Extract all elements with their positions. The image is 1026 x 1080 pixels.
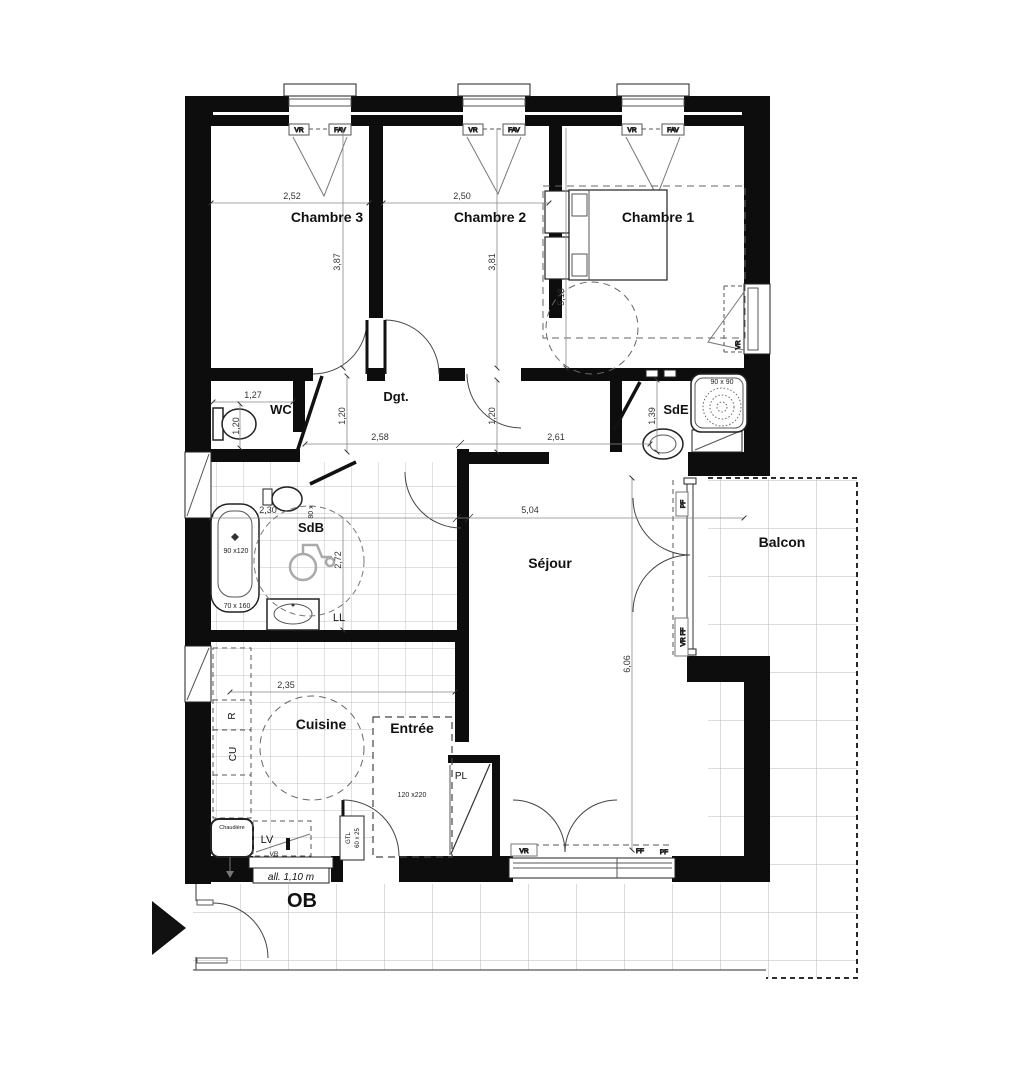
room-label-dgt: Dgt. — [383, 389, 408, 404]
room-label-entree: Entrée — [390, 720, 434, 736]
sde-shelf-1 — [646, 370, 658, 377]
window-chambre3: VR FAV — [284, 84, 356, 196]
dim-label-dgt-right: 1,20 — [487, 407, 497, 425]
window-label-fav: FAV — [334, 127, 346, 134]
cooking-label: CU — [228, 747, 239, 761]
floor-plan-page: VR FAV VR FAV VR FAV — [0, 0, 1026, 1080]
window-label-pf: PF — [660, 849, 668, 856]
dim-label-chambre3-depth: 3,87 — [332, 253, 342, 271]
bathtub-size-label: 90 x120 — [224, 548, 249, 555]
sde-shelf-2 — [664, 370, 676, 377]
dim-label-wc-depth: 1,20 — [231, 417, 241, 435]
dim-label-couloir-width: 2,61 — [547, 432, 565, 442]
window-sejour-balcon: PF VR FF — [673, 478, 696, 656]
dim-label-cuisine-width: 2,35 — [277, 680, 295, 690]
window-sde-south — [692, 430, 742, 452]
room-label-cuisine: Cuisine — [296, 716, 347, 732]
dim-label-sejour-depth: 6,06 — [622, 655, 632, 673]
wall-wc-east — [293, 368, 305, 432]
fridge-label: R — [227, 712, 238, 719]
entry-door-size-label: 120 x220 — [398, 792, 427, 799]
dim-label-dgt-width: 2,58 — [371, 432, 389, 442]
wall-placard-right — [492, 755, 500, 858]
wall-sdb-east — [457, 449, 469, 642]
window-label-vr: VR — [627, 127, 636, 134]
ob-label: OB — [287, 890, 317, 912]
dim-label-chambre2-depth: 3,81 — [487, 253, 497, 271]
dim-label-chambre2-width: 2,50 — [453, 191, 471, 201]
window-chambre1: VR FAV — [617, 84, 689, 196]
shower-size-label: 90 x 90 — [711, 379, 734, 386]
dim-label-sdb-depth: 2,72 — [333, 551, 343, 569]
wall-sdb-cuisine — [185, 630, 469, 642]
door-opening-chambre2 — [385, 368, 439, 381]
dim-label-chambre1-depth: 5,18 — [556, 288, 566, 306]
boiler-label: Chaudière — [219, 825, 244, 831]
room-label-sde: SdE — [663, 402, 689, 417]
room-label-wc: WC — [270, 402, 292, 417]
sdb-fixture-size-label: 80 x — [308, 505, 315, 519]
bed-pillow-1 — [572, 194, 587, 216]
window-sdb-west — [185, 452, 211, 518]
room-label-chambre1: Chambre 1 — [622, 209, 695, 225]
dim-label-dgt-left: 1,20 — [337, 407, 347, 425]
wall-sde-south — [688, 452, 770, 476]
bathtub-size2-label: 70 x 160 — [224, 603, 251, 610]
door-arc-chambre2 — [385, 320, 439, 374]
room-label-sdb: SdB — [298, 520, 324, 535]
wall-couloir-sejour — [461, 452, 549, 464]
bed-pillow-2 — [572, 254, 587, 276]
entree-dashed-zone — [373, 717, 452, 857]
wall-cuisine-east — [455, 630, 469, 742]
washing-machine-label: LL — [333, 612, 345, 624]
room-label-balcon: Balcon — [759, 534, 806, 550]
window-label-vr: VR — [519, 848, 528, 855]
nightstand-1 — [545, 191, 569, 233]
entrance-arrow — [152, 901, 186, 955]
window-chambre2: VR FAV — [458, 84, 530, 194]
placard-label: PL — [455, 771, 468, 782]
door-arc-balcon-2 — [633, 555, 690, 612]
window-cuisine-west — [185, 646, 211, 702]
dim-label-wc-width: 1,27 — [244, 390, 262, 400]
window-sejour-south: VR FF PF — [509, 844, 675, 878]
dim-label-sejour-width: 5,04 — [521, 505, 539, 515]
room-label-sejour: Séjour — [528, 555, 572, 571]
sdb-fixture-cistern — [263, 489, 272, 505]
allege-label: all. 1,10 m — [268, 872, 314, 883]
window-label-fav: FAV — [508, 127, 520, 134]
door-arc-sejour-south-2 — [565, 800, 617, 852]
dim-label-chambre3-width: 2,52 — [283, 191, 301, 201]
window-label-vr: VR — [735, 340, 742, 349]
nightstand-2 — [545, 237, 569, 279]
gtl-label-2: 60 x 25 — [355, 827, 361, 847]
dishwasher-vr-label: VR — [269, 851, 278, 858]
wall-east-lower — [744, 656, 770, 882]
window-label-ff: FF — [636, 848, 644, 855]
door-opening-chambre1 — [465, 368, 521, 381]
dishwasher-mark — [286, 838, 290, 850]
gtl-label-1: GTL — [346, 832, 352, 844]
dishwasher-label: LV — [261, 834, 274, 846]
window-label-vr-ff: VR FF — [680, 628, 687, 647]
dim-label-sdb-width: 2,30 — [259, 505, 277, 515]
window-label-vr: VR — [468, 127, 477, 134]
wall-chambre3-chambre2 — [369, 126, 383, 318]
window-chambre1-east: VR — [708, 284, 770, 354]
dim-label-sde-depth: 1,39 — [647, 407, 657, 425]
room-label-chambre2: Chambre 2 — [454, 209, 527, 225]
sde-sink-basin — [650, 435, 676, 453]
window-label-fav: FAV — [667, 127, 679, 134]
room-label-chambre3: Chambre 3 — [291, 209, 364, 225]
sdb-vanity-faucet — [292, 604, 295, 607]
door-arc-chambre3 — [313, 320, 367, 374]
terrace-floor-tiles — [193, 884, 766, 970]
floor-plan-drawing: VR FAV VR FAV VR FAV — [0, 0, 1026, 1080]
window-label-vr: VR — [294, 127, 303, 134]
window-label-pf: PF — [680, 500, 687, 508]
